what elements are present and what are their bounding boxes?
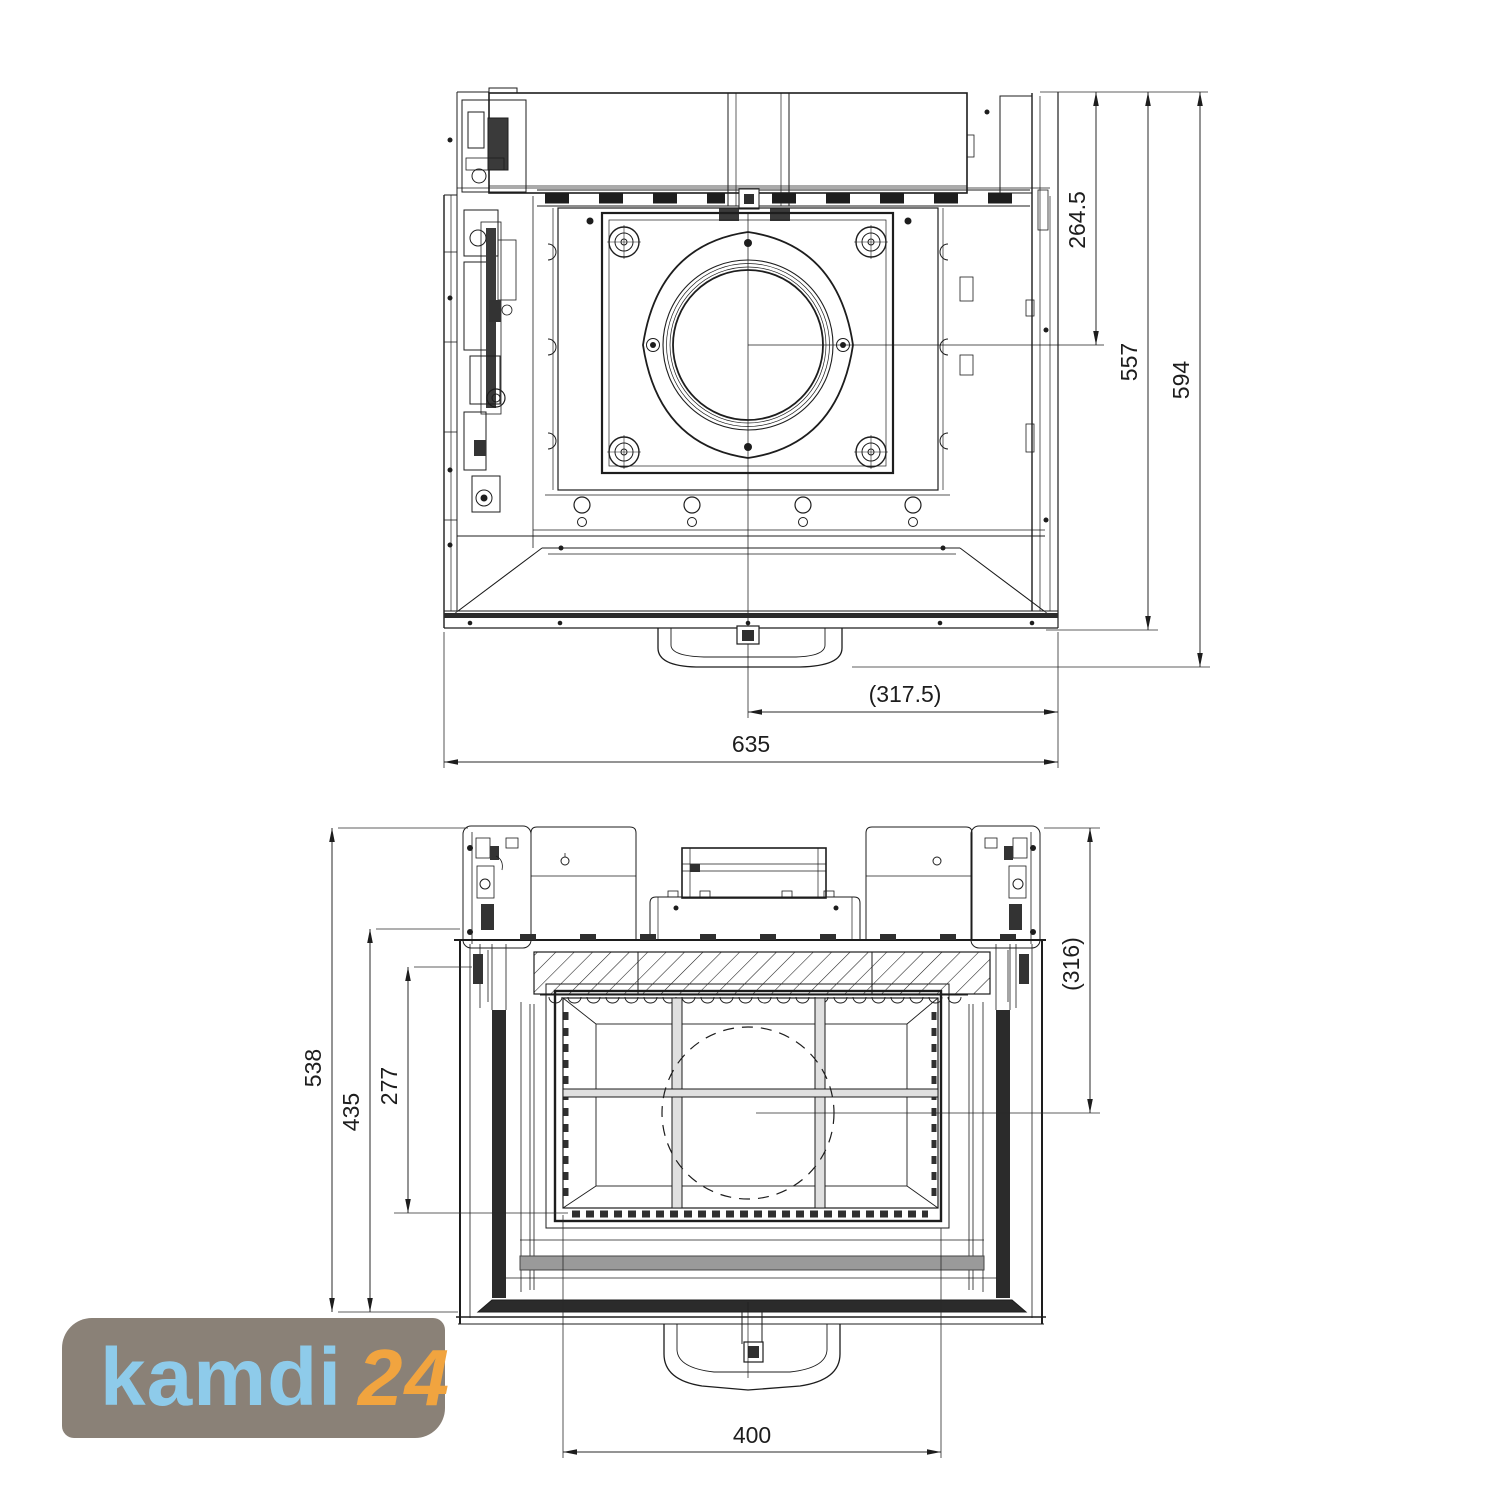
dim-body-depth: 557 <box>1116 343 1142 381</box>
page: 264.5 557 594 (317.5) 635 <box>0 0 1500 1500</box>
dim-total-depth: 594 <box>1168 361 1194 400</box>
insulation-hatch-band <box>534 952 990 994</box>
logo-suffix-text: 24 <box>358 1338 451 1418</box>
corner-bolt-bosses <box>607 225 888 469</box>
dim-rear-to-flue-center: 264.5 <box>1064 191 1090 249</box>
left-mounting-bracket <box>463 826 531 948</box>
dim-frame-height: 435 <box>338 1093 364 1131</box>
dim-center-to-side: (317.5) <box>869 681 942 707</box>
dim-glass-height: 277 <box>376 1067 402 1105</box>
front-bolt-row <box>574 497 921 527</box>
front-view-drawing <box>454 826 1046 1390</box>
door-handle-top-view <box>658 626 842 667</box>
kamdi24-logo: kamdi 24 <box>62 1318 445 1438</box>
dim-total-height: 538 <box>300 1049 326 1087</box>
dim-top-to-flue-center: (316) <box>1058 937 1084 991</box>
door-handle-front-view <box>664 1302 840 1390</box>
dim-glass-width: 400 <box>733 1422 771 1448</box>
top-view-dimension-labels: 264.5 557 594 (317.5) 635 <box>732 191 1194 757</box>
technical-drawing: 264.5 557 594 (317.5) 635 <box>0 0 1500 1500</box>
top-view-drawing <box>444 88 1104 718</box>
logo-brand-text: kamdi <box>100 1337 342 1419</box>
dim-total-width: 635 <box>732 731 770 757</box>
flue-duct-front-view <box>650 848 860 941</box>
glass-window <box>563 998 938 1214</box>
right-mounting-bracket <box>971 826 1040 948</box>
